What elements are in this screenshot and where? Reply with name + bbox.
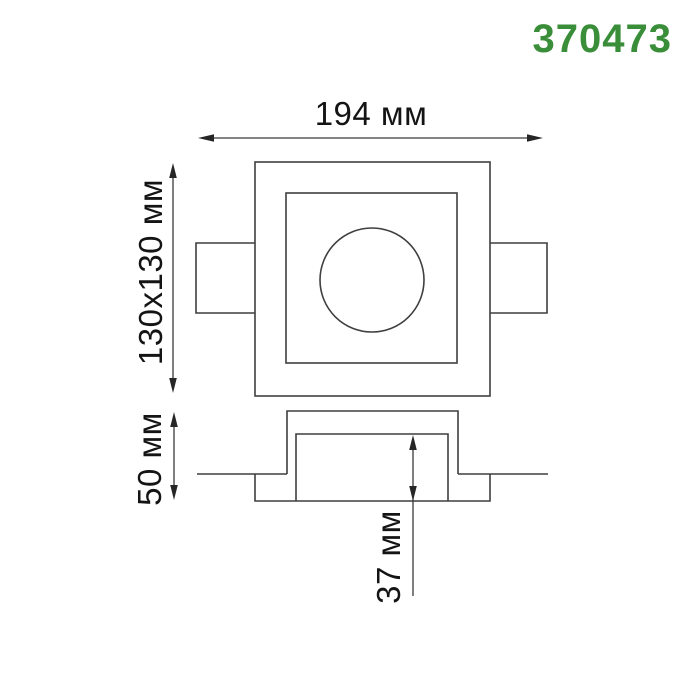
arrowhead-down-icon [169,378,177,393]
dimension-width-arrow [198,134,543,142]
mounting-tab-right [490,243,547,313]
side-upper-body [287,411,458,474]
arrowhead-up-icon [170,412,178,427]
arrowhead-down-icon [170,485,178,500]
side-inner-cavity [296,434,448,501]
arrowhead-left-icon [198,134,214,142]
lamp-opening-circle [320,228,424,332]
dimension-drawing-page: 370473 [0,0,700,700]
fixture-outer-square [255,162,490,396]
dimension-height-label: 50 мм [131,412,169,506]
dimension-height-arrow [170,412,178,500]
arrowhead-up-icon [409,435,417,450]
arrowhead-down-icon [409,486,417,501]
fixture-inner-square [286,193,457,363]
side-view [197,411,548,501]
dimension-depth-label: 37 мм [370,510,408,604]
dimension-cutout-label: 130x130 мм [132,179,170,365]
dimension-width-label: 194 мм [315,95,428,133]
dimension-cutout-arrow [169,163,177,393]
top-view [196,162,547,396]
side-flange-body [255,474,490,501]
dimension-depth-arrow [409,435,417,596]
mounting-tab-left [196,243,255,313]
arrowhead-right-icon [527,134,543,142]
arrowhead-up-icon [169,163,177,178]
